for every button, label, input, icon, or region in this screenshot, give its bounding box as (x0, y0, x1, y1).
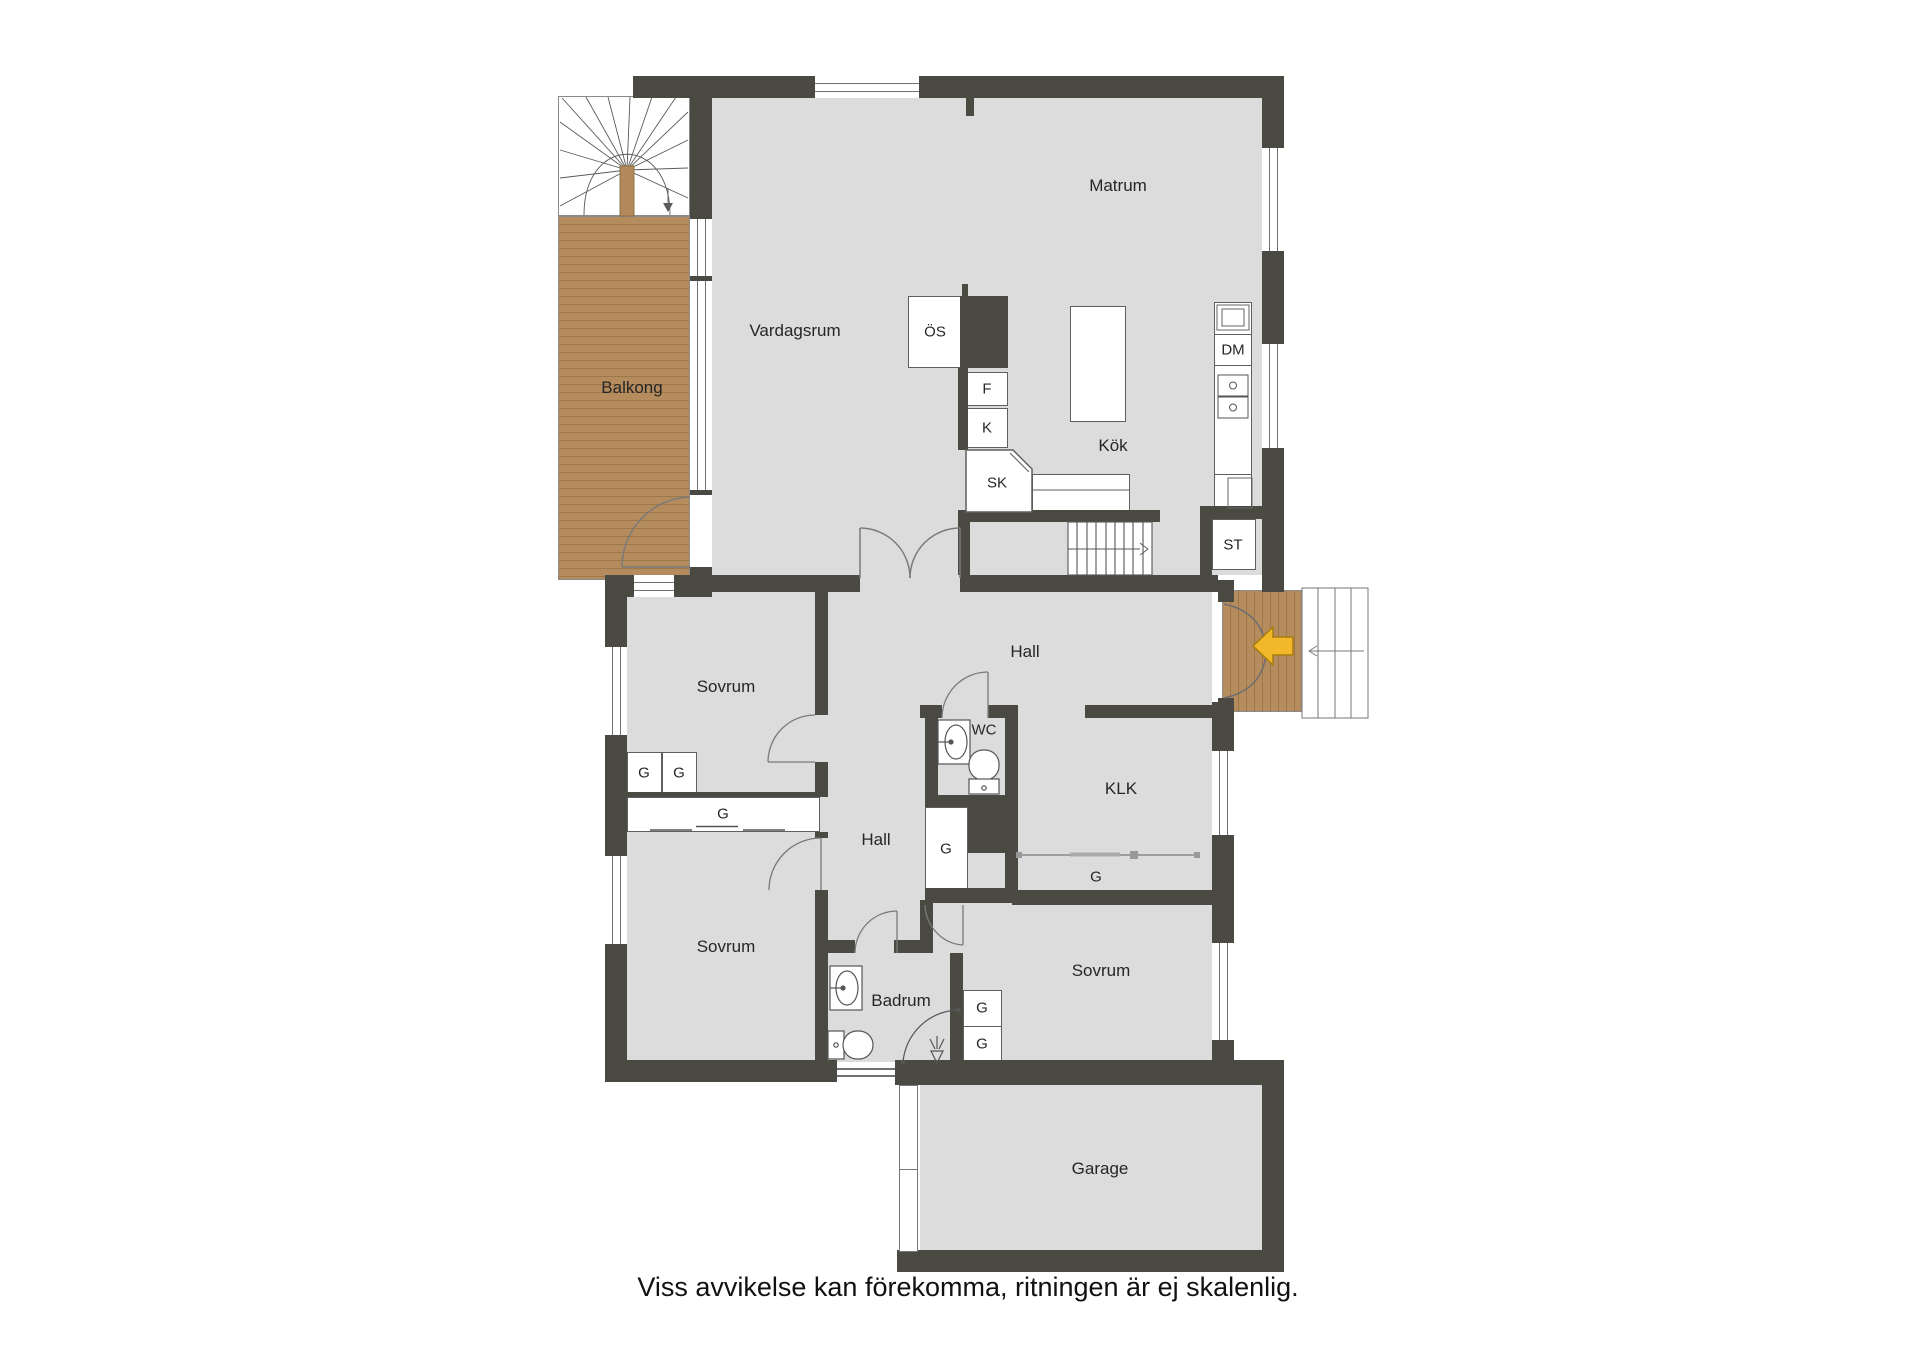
chimney-block (960, 296, 1008, 368)
wall (960, 575, 1218, 592)
entrance-porch-deck (1222, 590, 1302, 712)
fixture-label-os: ÖS (924, 324, 946, 341)
entry-steps (1302, 588, 1368, 718)
closet-label-g: G (673, 765, 685, 782)
room-label-garage: Garage (1072, 1159, 1129, 1179)
wall (958, 368, 968, 450)
wall (712, 575, 860, 592)
disclaimer-caption: Viss avvikelse kan förekomma, ritningen … (637, 1272, 1298, 1303)
window (634, 575, 674, 597)
wall (966, 98, 974, 116)
wall (958, 510, 1160, 522)
window (605, 647, 627, 735)
balcony-door-opening (690, 495, 712, 567)
room-label-wc: WC (972, 722, 997, 739)
garage-door (899, 1085, 918, 1252)
closet-label-g: G (717, 806, 729, 823)
wall (1200, 506, 1262, 519)
window (605, 856, 627, 944)
room-label-klk: KLK (1105, 779, 1137, 799)
fixture-label-k: K (982, 420, 992, 437)
kitchen-island (1070, 306, 1126, 422)
wall (894, 940, 920, 953)
window (1212, 751, 1234, 835)
fixture-label-st: ST (1223, 537, 1242, 554)
wall (1218, 580, 1234, 602)
kitchen-counter (1032, 474, 1130, 512)
wall (1085, 705, 1212, 718)
closet-label-g: G (976, 1000, 988, 1017)
balcony-deck (558, 216, 690, 580)
wall (815, 832, 828, 838)
wall (633, 76, 1284, 98)
wall (605, 1060, 837, 1082)
fixture-label-sk: SK (987, 475, 1007, 492)
closet-label-g: G (976, 1036, 988, 1053)
window (690, 219, 712, 276)
room-label-matrum: Matrum (1089, 176, 1147, 196)
floor-door-opening (860, 575, 960, 592)
floor-plan: Matrum Vardagsrum Balkong Kök Hall Hall … (0, 0, 1920, 1357)
closet-label-g: G (940, 841, 952, 858)
spiral-stair-box (558, 96, 690, 216)
wall (925, 888, 1012, 903)
closet-label-g: G (1090, 869, 1102, 886)
wall (920, 705, 942, 718)
window (815, 76, 919, 98)
wall (815, 592, 828, 715)
window (837, 1062, 895, 1082)
wall (1262, 1085, 1284, 1252)
wall (1012, 890, 1234, 905)
closet-label-g: G (638, 765, 650, 782)
room-label-sovrum-3: Sovrum (1072, 961, 1131, 981)
wall (828, 940, 855, 953)
room-label-vardagsrum: Vardagsrum (749, 321, 840, 341)
wall (1005, 705, 1018, 890)
fixture-label-dm: DM (1221, 342, 1244, 359)
window (690, 281, 712, 490)
wall (968, 795, 1005, 853)
wall (627, 792, 820, 797)
room-label-badrum: Badrum (871, 991, 931, 1011)
room-label-kok: Kök (1098, 436, 1127, 456)
window (1262, 148, 1284, 251)
room-label-sovrum-2: Sovrum (697, 937, 756, 957)
window (1212, 943, 1234, 1040)
wall (815, 890, 828, 1062)
wall (950, 953, 963, 1062)
room-label-sovrum-1: Sovrum (697, 677, 756, 697)
wall (920, 900, 933, 953)
room-label-hall-lower: Hall (861, 830, 890, 850)
fixture-label-f: F (982, 381, 991, 398)
window (1262, 344, 1284, 448)
wall (1200, 519, 1212, 577)
room-label-balkong: Balkong (601, 378, 662, 398)
wall (962, 284, 968, 296)
wall (897, 1250, 1284, 1272)
wall (925, 718, 938, 807)
room-label-hall-upper: Hall (1010, 642, 1039, 662)
